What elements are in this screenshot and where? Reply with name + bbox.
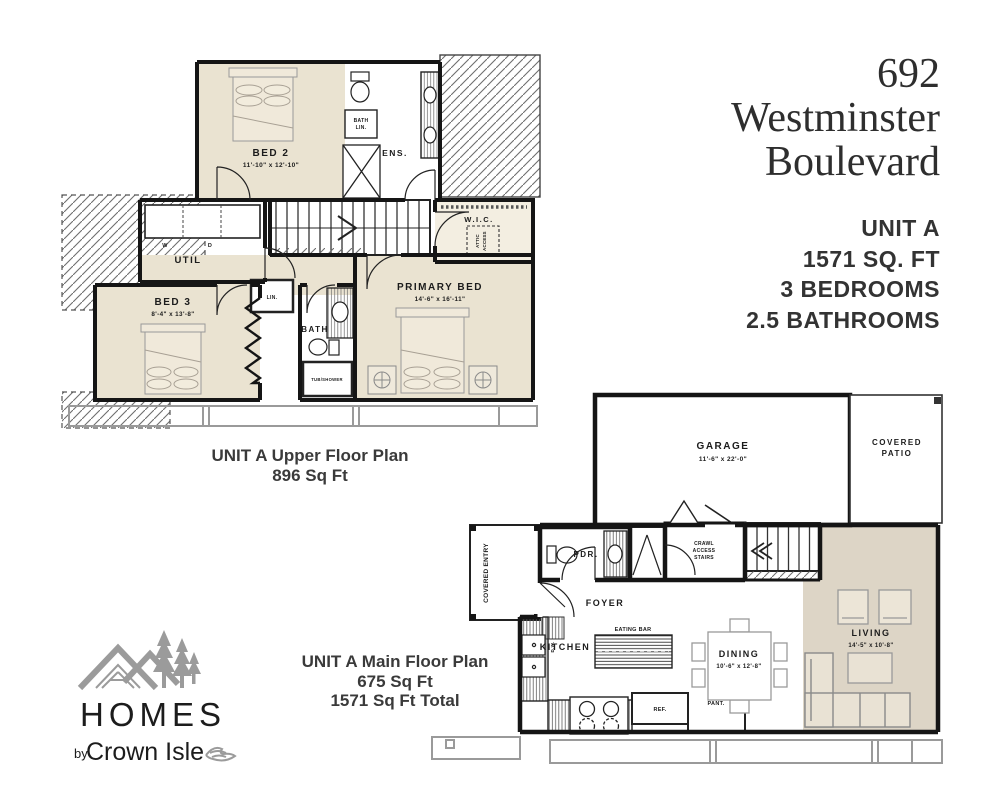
tub-shower-icon: TUB/SHOWER <box>303 362 352 396</box>
primary-label: PRIMARY BED <box>397 282 483 293</box>
living-dim: 14'-5" x 10'-8" <box>848 643 893 649</box>
bed-icon <box>141 324 205 394</box>
bed2-label: BED 2 <box>253 148 290 159</box>
living-label: LIVING <box>851 628 890 638</box>
bath-lin-label-1: BATH <box>354 118 369 124</box>
stove-icon <box>570 697 628 734</box>
crawl-label-3: STAIRS <box>694 555 714 561</box>
foundation-strip <box>432 737 942 763</box>
entry-label: COVERED ENTRY <box>483 543 490 603</box>
swan-icon <box>206 748 235 761</box>
tub-label: TUB/SHOWER <box>311 377 343 382</box>
attic-label-2: ACCESS <box>482 231 487 251</box>
builder-logo: HOMES by Crown Isle <box>58 622 248 782</box>
lin-label: LIN. <box>267 295 278 301</box>
washer-dryer-icon <box>145 205 260 238</box>
spec-bathrooms: 2.5 BATHROOMS <box>560 305 940 336</box>
bed-icon <box>396 308 469 393</box>
covered-patio: COVERED PATIO <box>850 395 942 523</box>
wic-floor <box>435 200 533 262</box>
crawl-label-1: CRAWL <box>694 541 714 547</box>
linen-xbox <box>343 145 380 198</box>
bed-icon <box>229 68 297 141</box>
coffee-table-icon <box>848 653 892 683</box>
bath-lin-label-2: LIN. <box>356 125 367 131</box>
main-caption-line3: 1571 Sq Ft Total <box>260 691 530 711</box>
roof-hatch-top-right <box>440 55 540 197</box>
patio-label-2: PATIO <box>882 449 913 458</box>
stairs-upper <box>270 200 430 255</box>
patio-post <box>934 397 941 404</box>
floorplan-sheet: 692 Westminster Boulevard UNIT A 1571 SQ… <box>0 0 1000 800</box>
sink-icon <box>424 127 436 143</box>
foyer-label: FOYER <box>586 598 625 608</box>
logo-brand-text: Crown Isle <box>86 738 204 766</box>
sink-icon <box>424 87 436 103</box>
bed3-label: BED 3 <box>155 297 192 308</box>
spec-area: 1571 SQ. FT <box>560 244 940 275</box>
crawl-label-2: ACCESS <box>693 548 716 554</box>
garage-label: GARAGE <box>697 441 750 452</box>
coat-closet <box>630 527 665 580</box>
spec-unit: UNIT A <box>560 213 940 244</box>
ensuite-room: BATH LIN. ENS. <box>343 72 440 198</box>
washer-label: W <box>162 243 168 249</box>
kitchen-label: KITCHEN <box>540 642 591 652</box>
bed3-dim: 8'-4" x 13'-8" <box>151 311 194 318</box>
powder-room: PDR. <box>547 531 627 577</box>
ens-label: ENS. <box>382 148 408 158</box>
ref-label: REF. <box>653 707 666 713</box>
bath-label: BATH <box>301 325 329 334</box>
patio-label-1: COVERED <box>872 438 922 447</box>
ref-icon: REF. <box>632 693 688 724</box>
dining: DINING 10'-6" x 12'-8" <box>692 619 787 713</box>
bed2-dim: 11'-10" x 12'-10" <box>243 162 299 169</box>
pant-label: PANT. <box>708 701 725 707</box>
wic-label: W.I.C. <box>464 215 493 224</box>
util-label: UTIL <box>174 255 201 266</box>
unit-specs: UNIT A 1571 SQ. FT 3 BEDROOMS 2.5 BATHRO… <box>560 213 940 335</box>
dryer-label: D <box>208 243 212 249</box>
vanity-icon <box>421 72 440 158</box>
stairs-main <box>745 523 820 580</box>
address-title: 692 Westminster Boulevard <box>520 52 940 184</box>
main-caption-line2: 675 Sq Ft <box>260 672 530 692</box>
logo-homes-text: HOMES <box>80 696 226 733</box>
toilet-icon <box>309 339 339 355</box>
nightstand-icon <box>368 366 396 394</box>
eating-bar-icon: EATING BAR <box>595 627 672 668</box>
primary-dim: 14'-6" x 16'-11" <box>415 296 466 303</box>
sink-icon <box>608 545 622 563</box>
spec-bedrooms: 3 BEDROOMS <box>560 274 940 305</box>
eating-bar-label: EATING BAR <box>615 627 652 633</box>
address-street-2: Boulevard <box>520 140 940 184</box>
attic-label-1: ATTIC <box>475 234 480 248</box>
dining-label: DINING <box>719 649 760 659</box>
garage-dim: 11'-6" x 22'-0" <box>699 456 747 463</box>
toilet-icon <box>351 72 369 102</box>
garage-room: GARAGE 11'-6" x 22'-0" <box>595 395 850 525</box>
address-number: 692 <box>520 52 940 96</box>
bath-linen-closet <box>345 110 377 138</box>
address-street-1: Westminster <box>520 96 940 140</box>
sink-icon <box>332 302 348 322</box>
main-plan-caption: UNIT A Main Floor Plan 675 Sq Ft 1571 Sq… <box>260 652 530 711</box>
main-caption-line1: UNIT A Main Floor Plan <box>260 652 530 672</box>
dining-dim: 10'-6" x 12'-8" <box>716 664 761 670</box>
